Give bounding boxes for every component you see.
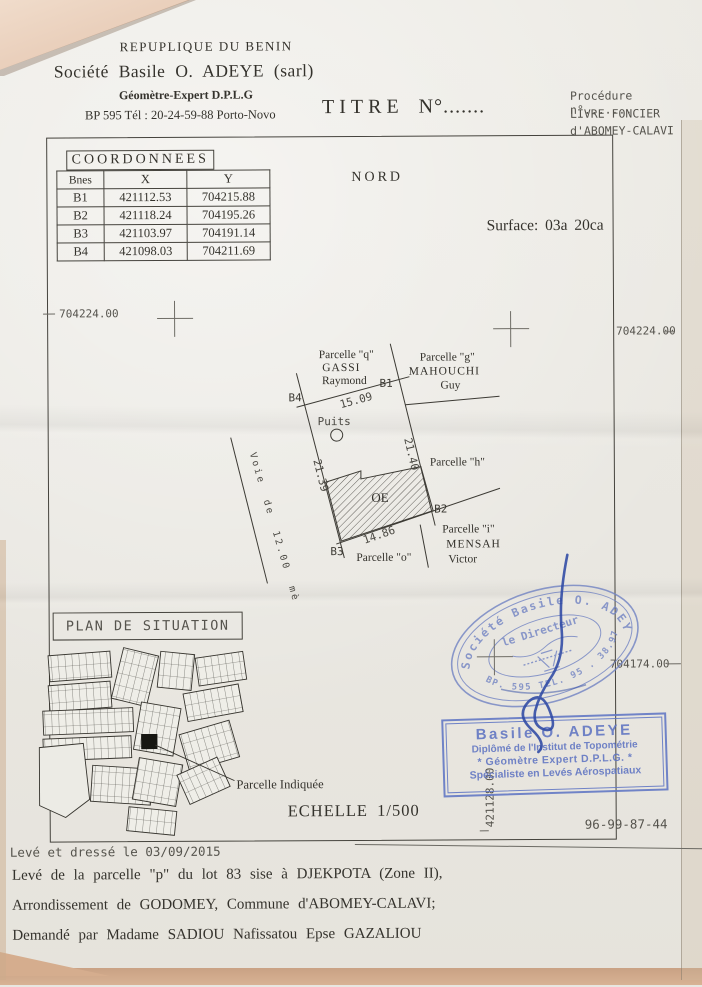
situation-title-box: PLAN DE SITUATION [53,612,243,641]
address-label: BP 595 Tél : 20-24-59-88 Porto-Novo [85,107,276,123]
building-label: OE [371,490,388,505]
table-header-row: Bnes X Y [57,170,270,189]
surface-label: Surface: 03a 20ca [487,217,604,236]
land-book-line1: LIVRE FONCIER [570,106,660,120]
scanned-survey-document: REPUPLIQUE DU BENIN Société Basile O. AD… [0,0,702,985]
coordinates-title-box: COORDONNEES [66,150,214,171]
grid-tick [480,830,489,831]
parcel-drawing: OE B4 B1 B2 B3 15.09 21.39 21.40 14.86 P… [219,334,520,601]
road-label: Voie de 12.00 mètres [247,451,310,600]
titre-number: N°....... [419,95,486,117]
footer-surveyed-date: Levé et dressé le 03/09/2015 [10,844,221,860]
neighbor-g-line2: MAHOUCHI [409,365,480,377]
north-label: NORD [351,170,403,186]
neighbor-o-label: Parcelle "o" [356,552,411,564]
boundary-o-i [420,525,428,568]
neighbor-q-line3: Raymond [322,375,367,387]
footer-district: Arrondissement de GODOMEY, Commune d'ABO… [12,896,435,915]
neighbor-q-line1: Parcelle "q" [319,349,374,361]
corner-b4: B4 [288,391,302,404]
col-header-x: X [104,170,187,188]
coordinates-table: COORDONNEES Bnes X Y B1 421112.53 704215… [56,149,271,261]
document-sheet: REPUPLIQUE DU BENIN Société Basile O. AD… [0,0,702,987]
rect-stamp: Basile O. ADEYE Diplômé de l'Institut de… [441,712,668,797]
table-row: B1 421112.53 704215.88 [57,188,270,207]
footer-rule [355,844,702,849]
footer-parcel-desc: Levé de la parcelle "p" du lot 83 sise à… [12,866,443,885]
corner-b2: B2 [434,502,447,515]
company-name: Société Basile O. ADEYE (sarl) [54,60,314,82]
table-row: B3 421103.97 704191.14 [57,224,270,243]
grid-cross [157,301,193,337]
neighbor-i-line1: Parcelle "i" [442,523,495,535]
rect-stamp-inner-border: Basile O. ADEYE Diplômé de l'Institut de… [445,717,664,794]
neighbor-i-line2: MENSAH [446,538,501,550]
dim-top: 15.09 [338,390,373,411]
coordinates-grid: Bnes X Y B1 421112.53 704215.88 B2 42111… [56,169,270,261]
neighbor-q-line2: GASSI [322,362,360,374]
col-header-y: Y [187,170,270,188]
titre-word: TITRE [322,96,404,118]
neighbor-i-line3: Victor [448,553,477,565]
dim-right: 21.40 [401,436,421,471]
grid-tick [667,663,681,664]
boundary-g-h [405,396,499,404]
republic-label: REPUPLIQUE DU BENIN [120,38,293,55]
corner-b3: B3 [330,545,343,558]
indicated-parcel-label: Parcelle Indiquée [236,777,323,792]
titre-label: TITRE N°....... [322,95,485,119]
grid-label-top-left: 704224.00 [59,307,119,320]
neighbor-g-line3: Guy [441,379,461,391]
neighbor-h-label: Parcelle "h" [430,456,485,468]
scale-label: ECHELLE 1/500 [288,801,420,822]
situation-map [31,640,264,853]
footer-requested-by: Demandé par Madame SADIOU Nafissatou Eps… [12,926,421,945]
profession-label: Géomètre-Expert D.P.L.G [119,88,253,104]
corner-b1: B1 [379,377,392,390]
grid-tick [663,331,674,332]
table-row: B4 421098.03 704211.69 [57,242,270,261]
round-stamp: Société Basile O. ADEYE le Directeur BP.… [438,581,663,720]
dim-left: 21.39 [310,458,331,493]
col-header-bnes: Bnes [57,171,104,189]
grid-cross [477,639,513,675]
table-row: B2 421118.24 704195.26 [57,206,270,225]
well-circle [331,429,343,441]
neighbor-g-line1: Parcelle "g" [420,351,475,363]
grid-tick [43,314,55,315]
well-label: Puits [318,415,351,428]
stamp-micro-text [524,650,574,665]
open-area [39,743,89,817]
reference-number: 96-99-87-44 [585,816,668,831]
